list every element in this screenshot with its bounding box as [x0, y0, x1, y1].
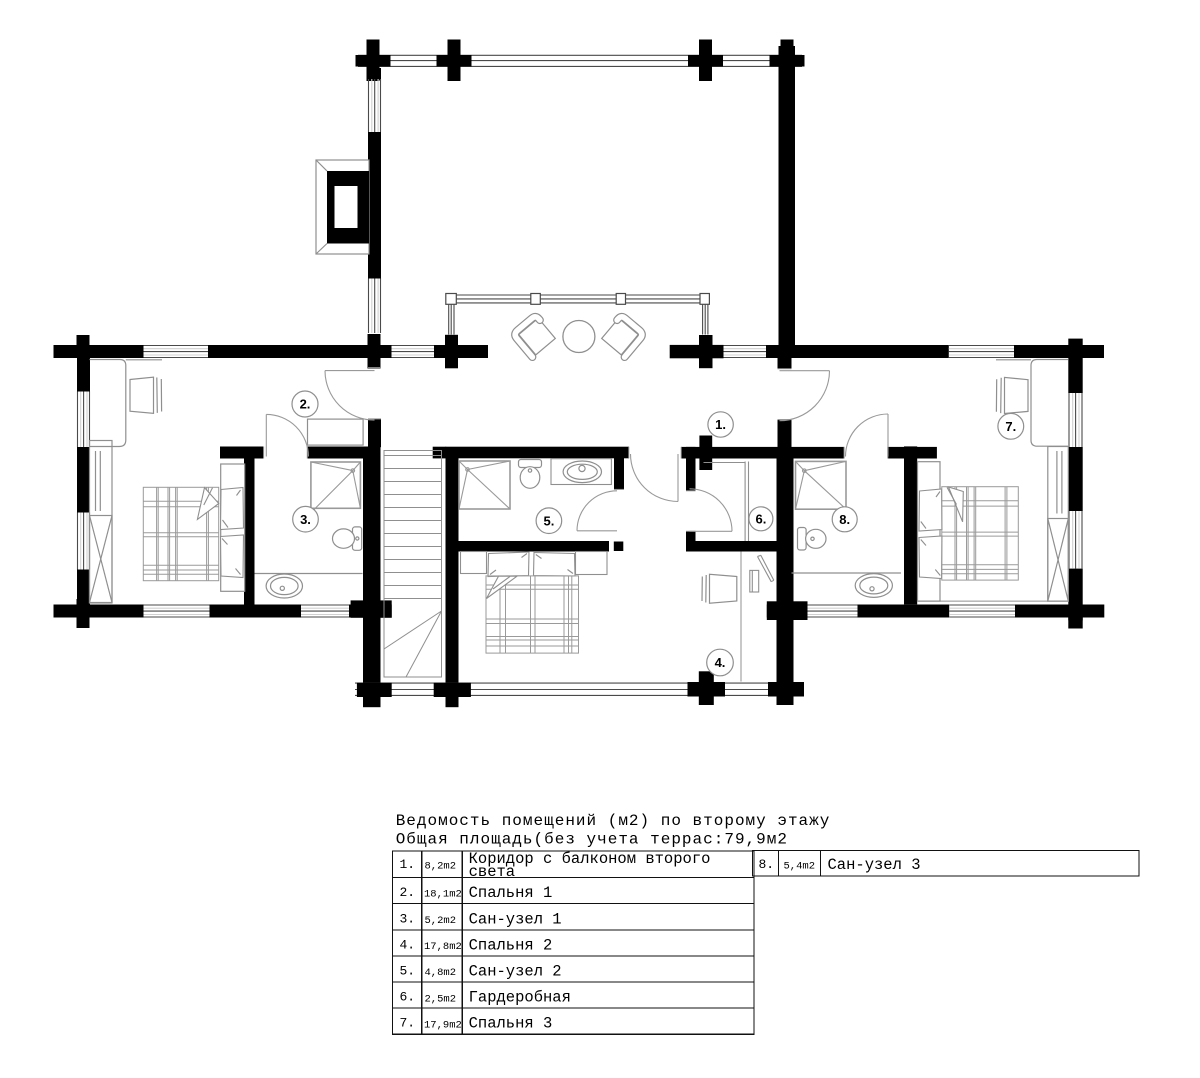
svg-text:17,8m2: 17,8m2: [424, 941, 462, 953]
svg-text:5.: 5.: [400, 964, 416, 979]
svg-text:7.: 7.: [1005, 419, 1016, 434]
svg-text:Сан-узел 1: Сан-узел 1: [469, 910, 562, 928]
svg-text:2.: 2.: [300, 397, 311, 412]
svg-text:1.: 1.: [400, 857, 416, 872]
svg-text:8.: 8.: [759, 857, 775, 872]
svg-text:4.: 4.: [715, 655, 726, 670]
svg-text:3.: 3.: [400, 911, 416, 926]
svg-text:4,8m2: 4,8m2: [425, 967, 457, 979]
svg-text:8,2m2: 8,2m2: [425, 861, 457, 873]
svg-text:Ведомость помещений (м2) по вт: Ведомость помещений (м2) по второму этаж…: [396, 812, 831, 830]
svg-text:3.: 3.: [300, 512, 311, 527]
svg-text:1.: 1.: [715, 417, 726, 432]
svg-text:Сан-узел 2: Сан-узел 2: [469, 963, 562, 981]
svg-text:2,5m2: 2,5m2: [425, 993, 457, 1005]
svg-text:света: света: [469, 863, 516, 881]
svg-text:5.: 5.: [543, 513, 554, 528]
svg-text:6.: 6.: [400, 990, 416, 1005]
svg-text:4.: 4.: [400, 938, 416, 953]
svg-text:7.: 7.: [400, 1016, 416, 1031]
svg-text:6.: 6.: [755, 512, 766, 527]
svg-text:5,2m2: 5,2m2: [425, 915, 457, 927]
svg-text:Гардеробная: Гардеробная: [469, 989, 571, 1007]
svg-text:17,9m2: 17,9m2: [424, 1019, 462, 1031]
svg-text:Сан-узел 3: Сан-узел 3: [828, 856, 921, 874]
svg-text:Общая площадь(без учета террас: Общая площадь(без учета террас:79,9м2: [396, 831, 788, 849]
svg-text:2.: 2.: [400, 885, 416, 900]
svg-text:18,1m2: 18,1m2: [424, 889, 462, 901]
svg-text:5,4m2: 5,4m2: [784, 861, 816, 873]
svg-text:Спальня 1: Спальня 1: [469, 884, 553, 902]
svg-text:Спальня 2: Спальня 2: [469, 937, 553, 955]
svg-text:8.: 8.: [839, 512, 850, 527]
svg-text:Спальня 3: Спальня 3: [469, 1015, 553, 1033]
